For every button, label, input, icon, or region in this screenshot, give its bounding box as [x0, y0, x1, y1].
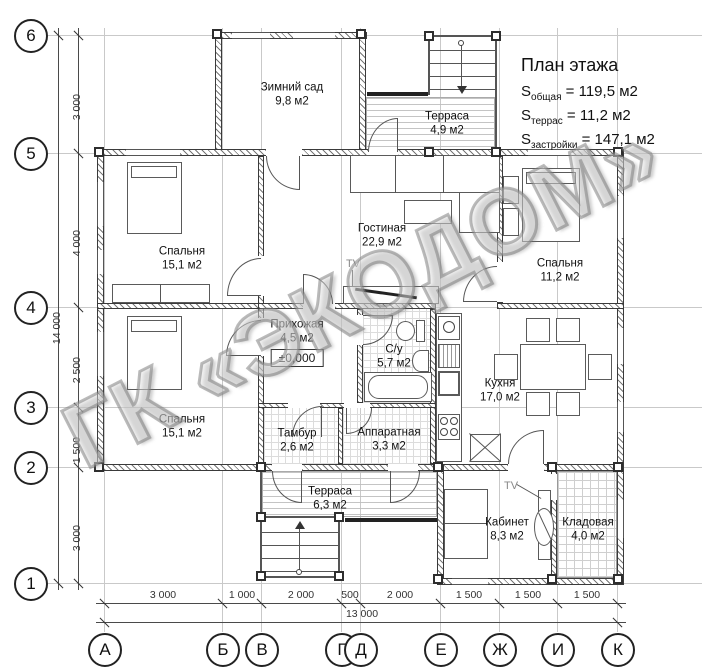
axis-bubble-И: И [541, 633, 575, 667]
plan-title: План этажа [521, 55, 655, 76]
terrace-edge [495, 35, 497, 152]
axis-bubble-2: 2 [14, 451, 48, 485]
door-leaf [390, 471, 391, 503]
chair [526, 318, 550, 342]
dim-label: 1 500 [456, 589, 482, 601]
post [256, 571, 266, 581]
bed-pillow [131, 166, 177, 178]
door-opening [388, 464, 418, 471]
tv-label: TV [504, 480, 518, 492]
wall [97, 464, 624, 471]
room-label: Аппаратная3,3 м2 [357, 427, 420, 454]
window [126, 149, 180, 156]
chair [556, 318, 580, 342]
sofa [350, 155, 500, 193]
axis-bubble-1: 1 [14, 567, 48, 601]
grid-line-vertical [222, 28, 223, 632]
post [613, 462, 623, 472]
terrace-rail [345, 518, 437, 522]
dim-label: 1 500 [574, 589, 600, 601]
dimension-line [96, 622, 626, 623]
room-label: Зимний сад9,8 м2 [261, 82, 324, 109]
dining-table [520, 344, 586, 390]
door-leaf [363, 315, 393, 316]
stair-arrow-down [457, 86, 467, 94]
door-arc [226, 320, 261, 356]
post [424, 147, 434, 157]
axis-bubble-Ж: Ж [483, 633, 517, 667]
window [617, 328, 624, 364]
tv-leader-line [352, 270, 353, 286]
window [97, 250, 104, 274]
axis-bubble-3: 3 [14, 391, 48, 425]
post [94, 462, 104, 472]
wall [338, 408, 343, 464]
coffee-table [404, 200, 452, 224]
area-footprint: Sзастройки = 147,1 м2 [521, 131, 655, 151]
post [433, 574, 443, 584]
sink-bowl [443, 321, 455, 333]
room-label: Кабинет8,3 м2 [485, 517, 529, 544]
stair-tread [430, 63, 495, 64]
post [356, 29, 366, 39]
stair-edge [260, 516, 340, 518]
sofa-cushion-line [395, 155, 396, 193]
stair-rail [428, 35, 430, 95]
dim-label: 2 000 [288, 589, 314, 601]
title-block: План этажа Sобщая = 119,5 м2 Sтеррас = 1… [521, 55, 655, 155]
door-arc [227, 258, 261, 296]
post [433, 462, 443, 472]
door-leaf [227, 295, 261, 296]
door-opening [551, 474, 557, 500]
door-opening [266, 149, 302, 156]
stair-edge [260, 576, 340, 578]
door-leaf [463, 301, 497, 302]
nightstand [503, 208, 519, 236]
wall [215, 32, 222, 156]
window [232, 32, 270, 39]
post [94, 147, 104, 157]
door-leaf [299, 156, 300, 190]
burner [450, 428, 458, 436]
window [617, 196, 624, 238]
wall [97, 303, 264, 309]
terrace-rail [367, 92, 428, 96]
stair-tread [262, 532, 338, 533]
wall [437, 464, 444, 585]
bed-pillow [526, 172, 576, 184]
chair [494, 354, 518, 380]
window [293, 32, 335, 39]
room-label: Кухня17,0 м2 [480, 378, 520, 405]
burner [450, 417, 458, 425]
dim-label: 4 000 [71, 230, 83, 256]
door-arc [266, 156, 300, 190]
chair [588, 354, 612, 380]
post [256, 462, 266, 472]
stair-direction-line [461, 44, 462, 88]
post [613, 574, 623, 584]
axis-bubble-6: 6 [14, 19, 48, 53]
window [97, 182, 104, 226]
terrace-edge [260, 471, 262, 578]
door-leaf [346, 408, 347, 434]
axis-bubble-5: 5 [14, 137, 48, 171]
dresser-divider [160, 284, 161, 303]
window [617, 402, 624, 432]
door-opening [508, 464, 544, 471]
room-label: С/у5,7 м2 [377, 344, 410, 371]
axis-bubble-Е: Е [424, 633, 458, 667]
room-label: Терраса4,9 м2 [425, 111, 469, 138]
window [452, 578, 488, 585]
room-label: Прихожая4,5 м2 [270, 319, 323, 346]
dim-total-label: 13 000 [346, 608, 378, 620]
axis-bubble-Б: Б [206, 633, 240, 667]
window [97, 332, 104, 376]
dim-label: 500 [341, 589, 359, 601]
level-mark: ±0,000 [271, 349, 324, 367]
dim-label: 3 000 [71, 94, 83, 120]
room-label: Гостиная22,9 м2 [358, 223, 406, 250]
axis-bubble-К: К [601, 633, 635, 667]
door-leaf [301, 471, 302, 503]
burner [440, 428, 448, 436]
dim-label: 3 000 [150, 589, 176, 601]
floor-plan-drawing: План этажа Sобщая = 119,5 м2 Sтеррас = 1… [0, 0, 704, 668]
stair-rail [338, 521, 340, 578]
bathtub-inner [368, 375, 428, 399]
room-label: Спальня11,2 м2 [537, 258, 583, 285]
room-label: Спальня15,1 м2 [159, 414, 205, 441]
door-leaf [303, 274, 304, 304]
oven [438, 371, 460, 396]
post [334, 571, 344, 581]
dim-label: 1 000 [229, 589, 255, 601]
wall [497, 303, 624, 309]
door-opening [272, 464, 302, 471]
room-label: Терраса6,3 м2 [308, 486, 352, 513]
dim-label: 1 500 [515, 589, 541, 601]
post [334, 512, 344, 522]
dim-label: 1 500 [71, 437, 83, 463]
grid-line-horizontal [48, 35, 702, 36]
area-terraces: Sтеррас = 11,2 м2 [521, 107, 655, 127]
dish-rack [438, 344, 460, 368]
stair-arrow-up [295, 521, 305, 529]
chair [526, 392, 550, 416]
room-label: Кладовая4,0 м2 [562, 517, 614, 544]
post [256, 512, 266, 522]
stair-direction-line [299, 528, 300, 572]
room-label: Тамбур2,6 м2 [277, 428, 316, 455]
post [547, 574, 557, 584]
dim-label: 2 500 [71, 357, 83, 383]
wall [258, 156, 264, 464]
wall [359, 32, 366, 156]
desk [444, 489, 488, 559]
stair-tread [430, 76, 495, 77]
stair-tread [262, 558, 338, 559]
axis-bubble-А: А [88, 633, 122, 667]
stair-tread [430, 50, 495, 51]
chair [556, 392, 580, 416]
dim-label: 3 000 [71, 525, 83, 551]
grid-line-vertical [104, 28, 105, 632]
stair-tread [262, 545, 338, 546]
door-arc [303, 274, 333, 304]
post [547, 462, 557, 472]
desk-divider [444, 523, 488, 524]
bed-pillow [131, 320, 177, 332]
sofa-corner [459, 192, 500, 233]
dim-total-label: 14 000 [51, 312, 63, 344]
room-label: Спальня15,1 м2 [159, 246, 205, 273]
door-leaf [226, 355, 261, 356]
dim-label: 2 000 [387, 589, 413, 601]
door-leaf [321, 406, 322, 437]
door-leaf [543, 430, 544, 464]
post [424, 31, 434, 41]
dresser [112, 284, 210, 303]
post [491, 147, 501, 157]
washbasin [412, 350, 429, 372]
door-leaf [397, 118, 398, 152]
stair-start-dot [296, 569, 302, 575]
grid-line-vertical [341, 28, 342, 632]
stair-edge [428, 35, 497, 37]
axis-bubble-4: 4 [14, 291, 48, 325]
door-arc [508, 430, 544, 464]
dimension-line [58, 28, 59, 590]
sofa-cushion-line [443, 155, 444, 193]
door-opening [497, 262, 503, 302]
tv-label: TV [346, 258, 360, 270]
axis-bubble-Д: Д [344, 633, 378, 667]
toilet-tank [416, 320, 425, 342]
axis-bubble-В: В [245, 633, 279, 667]
stair-start-dot [458, 40, 464, 46]
area-total: Sобщая = 119,5 м2 [521, 83, 655, 103]
post [212, 29, 222, 39]
window [617, 500, 624, 538]
nightstand [503, 176, 519, 204]
burner [440, 417, 448, 425]
post [491, 31, 501, 41]
door-arc [463, 266, 497, 302]
toilet-bowl [396, 321, 415, 341]
